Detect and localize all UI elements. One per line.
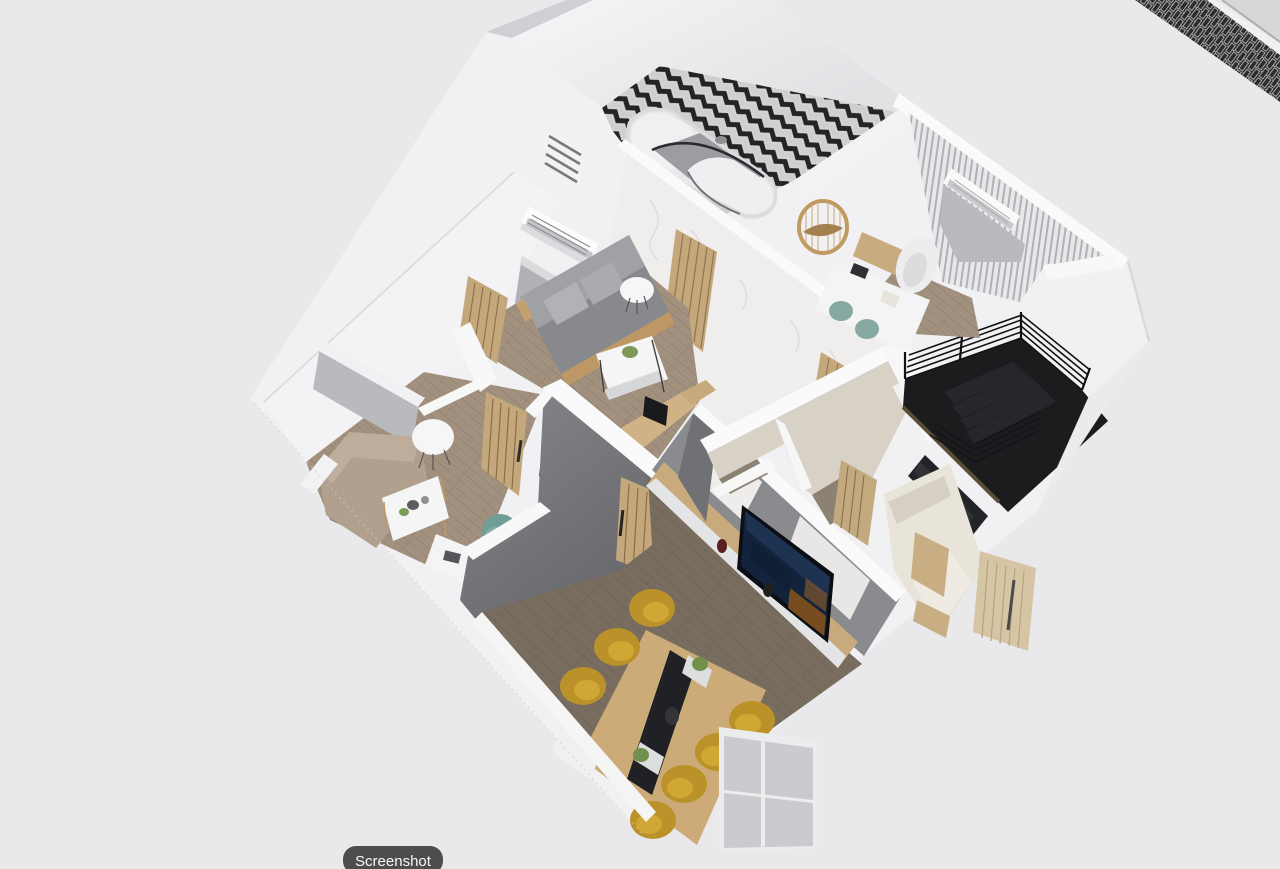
svg-text:Screenshot: Screenshot — [355, 853, 432, 869]
